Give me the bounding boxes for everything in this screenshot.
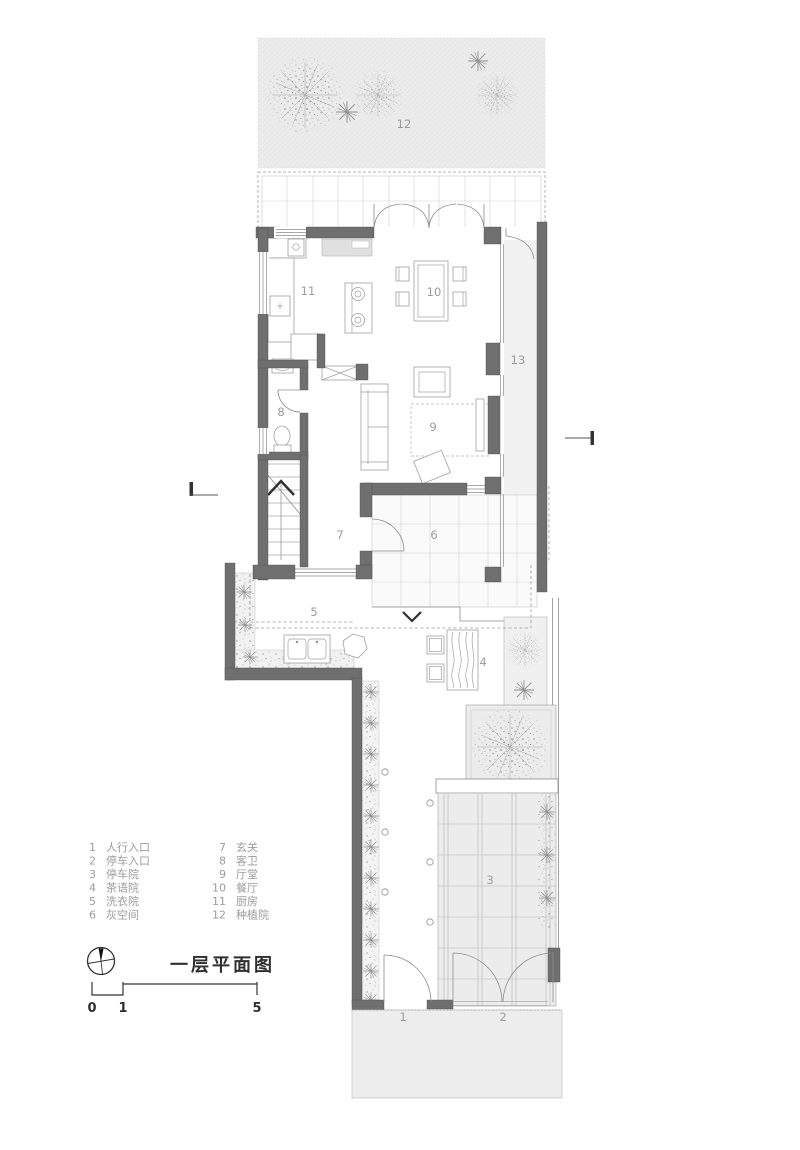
svg-text:6: 6 — [89, 909, 96, 922]
room-label-1: 1 — [399, 1010, 406, 1024]
entry-direction-arrow — [403, 612, 421, 621]
north-compass-icon — [88, 948, 115, 975]
svg-text:灰空间: 灰空间 — [106, 908, 139, 922]
side-planting-strip — [362, 681, 433, 1008]
room-label-8: 8 — [277, 405, 284, 419]
room-label-9: 9 — [429, 420, 436, 434]
svg-text:洗衣院: 洗衣院 — [106, 894, 139, 908]
room-label-6: 6 — [430, 528, 437, 542]
svg-text:人行入口: 人行入口 — [106, 841, 150, 854]
svg-text:1: 1 — [89, 841, 96, 854]
room-label-12: 12 — [397, 117, 412, 131]
svg-text:12: 12 — [212, 909, 226, 922]
scale-num-1: 1 — [118, 1001, 127, 1016]
svg-text:厅堂: 厅堂 — [236, 868, 258, 881]
scale-num-0: 0 — [87, 1001, 96, 1016]
scale-num-5: 5 — [252, 1001, 261, 1016]
parking-yard: 3 — [436, 705, 558, 1006]
gray-space-floor — [372, 495, 537, 621]
pergola-beam — [436, 779, 558, 793]
title-block: 一层平面图 0 1 5 — [87, 948, 275, 1017]
svg-text:停车入口: 停车入口 — [106, 854, 150, 868]
room-label-2: 2 — [499, 1010, 506, 1024]
floor-plan-canvas: 12 — [0, 0, 800, 1150]
svg-text:9: 9 — [219, 868, 226, 881]
pedestrian-gate — [384, 955, 431, 1002]
room-label-3: 3 — [486, 873, 493, 887]
planting-yard: 12 — [258, 38, 545, 168]
room-label-11: 11 — [301, 284, 316, 298]
section-marker-left — [190, 482, 219, 496]
section-marker-right — [565, 431, 594, 445]
room-label-4: 4 — [479, 655, 486, 669]
room-label-5: 5 — [310, 605, 317, 619]
room-label-13: 13 — [511, 353, 526, 367]
svg-text:4: 4 — [89, 882, 96, 895]
svg-text:玄关: 玄关 — [236, 840, 258, 854]
svg-text:8: 8 — [219, 855, 226, 868]
drawing-title: 一层平面图 — [170, 955, 275, 976]
svg-text:5: 5 — [89, 895, 96, 908]
svg-text:10: 10 — [212, 882, 226, 895]
svg-text:3: 3 — [89, 868, 96, 881]
deck-terrace — [258, 172, 545, 228]
svg-text:种植院: 种植院 — [236, 908, 269, 922]
street-area — [352, 1010, 562, 1098]
svg-text:餐厅: 餐厅 — [236, 881, 258, 895]
room-label-7: 7 — [336, 528, 343, 542]
svg-text:2: 2 — [89, 855, 96, 868]
svg-text:客卫: 客卫 — [236, 854, 258, 868]
svg-text:11: 11 — [212, 895, 226, 908]
svg-text:厨房: 厨房 — [236, 895, 258, 908]
legend: 1人行入口 2停车入口 3停车院 4茶语院 5洗衣院 6灰空间 7玄关 8客卫 … — [89, 840, 269, 922]
svg-text:7: 7 — [219, 841, 226, 854]
scale-bar: 0 1 5 — [87, 982, 261, 1016]
svg-text:停车院: 停车院 — [106, 867, 139, 881]
svg-text:茶语院: 茶语院 — [106, 881, 139, 895]
floor-plan-sheet: 12 — [0, 0, 800, 1150]
room-label-10: 10 — [427, 285, 442, 299]
